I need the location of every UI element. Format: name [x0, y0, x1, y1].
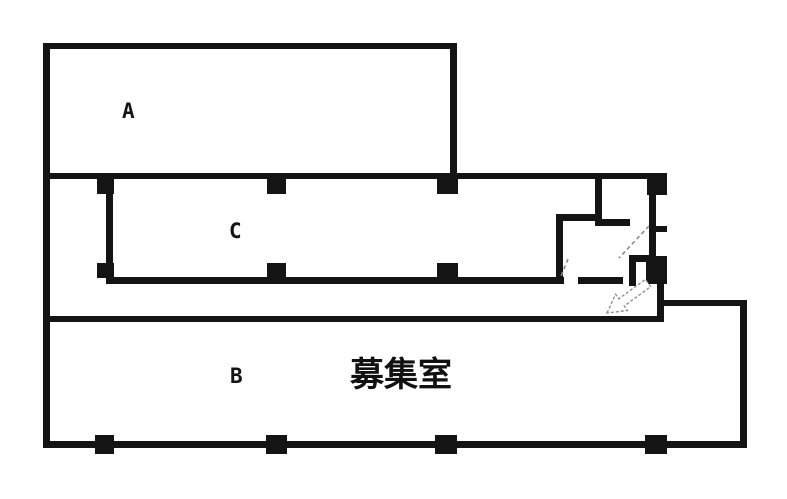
- door-swing-dash-icon: [619, 226, 649, 258]
- floor-plan: A C B 募集室: [0, 0, 787, 499]
- room-label-a: A: [122, 101, 135, 122]
- room-label-recruit: 募集室: [350, 358, 452, 392]
- room-label-c: C: [229, 221, 242, 242]
- door-swing-dash-icon: [561, 259, 568, 276]
- annotation-overlay: [0, 0, 787, 499]
- room-label-b: B: [230, 366, 243, 387]
- entry-direction-arrow-icon: [607, 279, 651, 313]
